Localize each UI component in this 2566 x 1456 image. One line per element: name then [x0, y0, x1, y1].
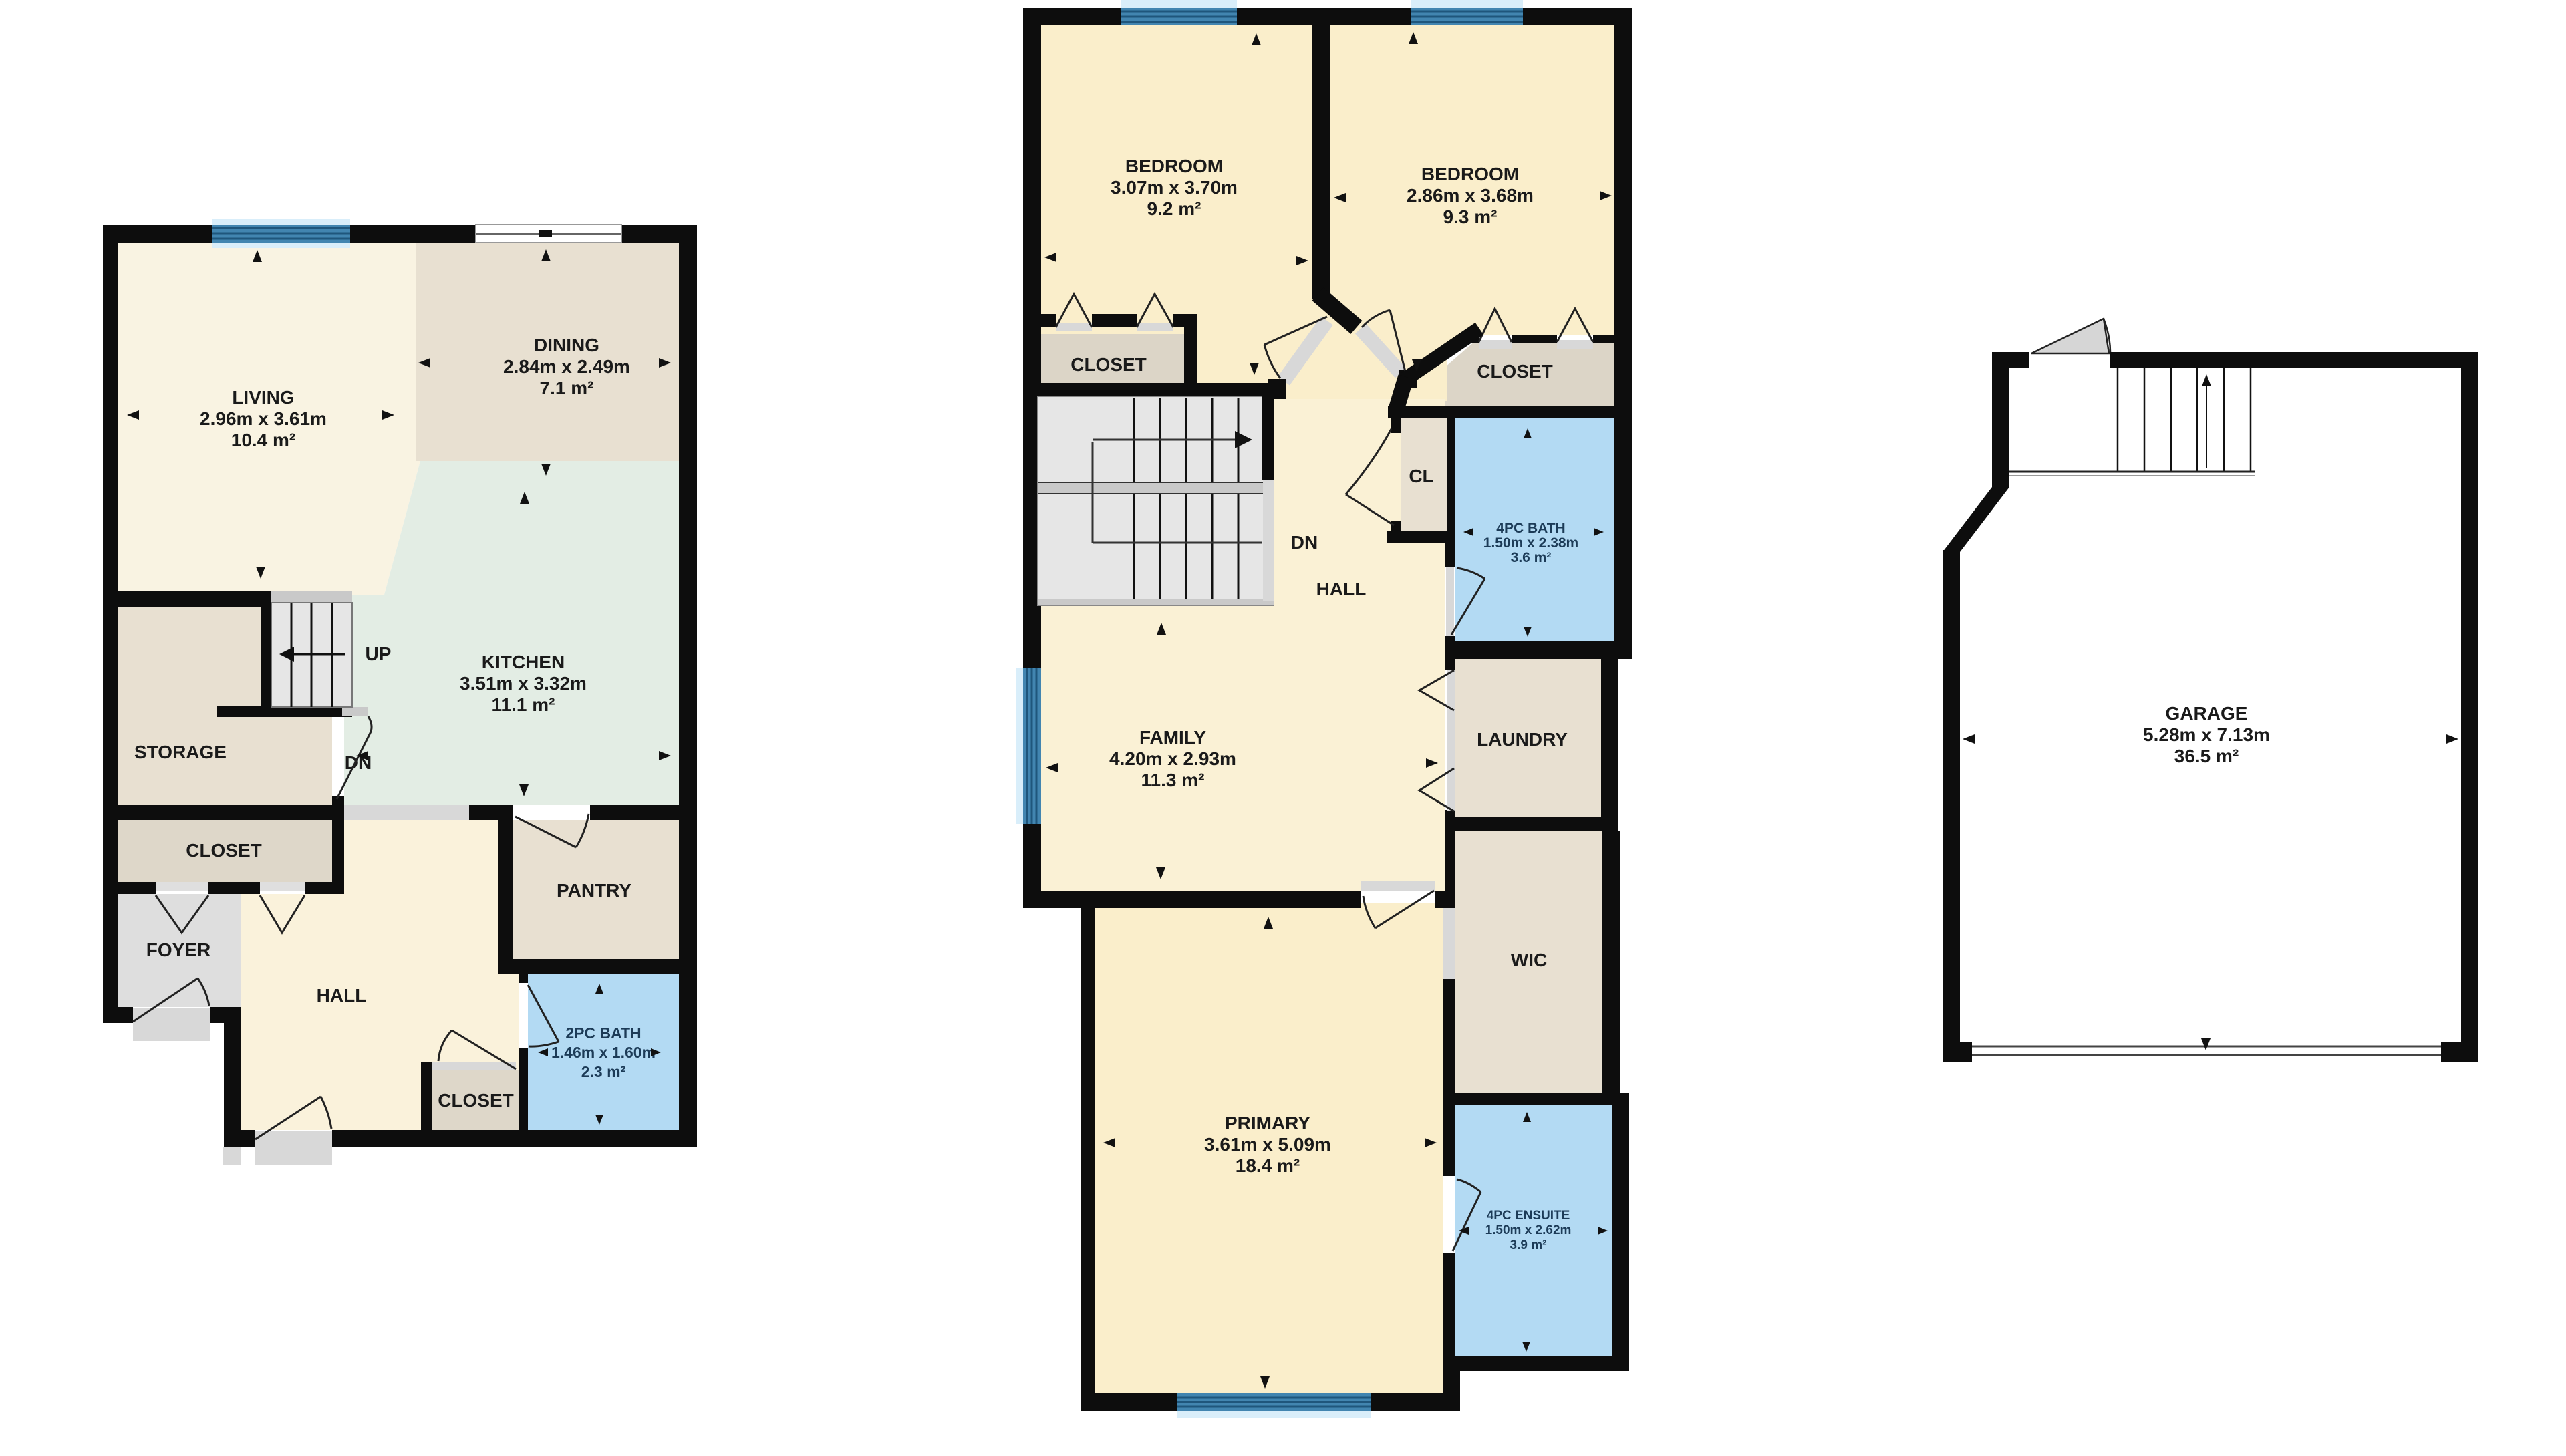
svg-text:1.46m x 1.60m: 1.46m x 1.60m [551, 1044, 656, 1061]
svg-text:BEDROOM: BEDROOM [1421, 164, 1519, 184]
svg-text:4PC ENSUITE: 4PC ENSUITE [1487, 1209, 1570, 1223]
svg-text:PANTRY: PANTRY [557, 880, 631, 901]
svg-text:LIVING: LIVING [232, 387, 294, 408]
svg-text:UP: UP [366, 643, 392, 664]
svg-text:FOYER: FOYER [146, 939, 210, 960]
svg-text:LAUNDRY: LAUNDRY [1477, 729, 1568, 750]
svg-text:3.6 m²: 3.6 m² [1511, 550, 1552, 565]
svg-text:11.3 m²: 11.3 m² [1141, 770, 1205, 790]
svg-text:CLOSET: CLOSET [1477, 361, 1553, 382]
svg-text:CL: CL [1409, 466, 1433, 486]
svg-text:DN: DN [1291, 532, 1318, 553]
svg-text:HALL: HALL [1316, 579, 1367, 599]
svg-text:9.3 m²: 9.3 m² [1443, 206, 1498, 227]
svg-text:CLOSET: CLOSET [186, 840, 262, 861]
svg-text:CLOSET: CLOSET [1071, 354, 1147, 375]
svg-text:1.50m x 2.62m: 1.50m x 2.62m [1485, 1223, 1572, 1237]
svg-text:9.2 m²: 9.2 m² [1147, 198, 1201, 219]
svg-text:KITCHEN: KITCHEN [482, 651, 565, 672]
svg-text:4PC BATH: 4PC BATH [1496, 521, 1565, 536]
svg-text:2.84m x 2.49m: 2.84m x 2.49m [503, 356, 630, 377]
svg-text:18.4 m²: 18.4 m² [1236, 1155, 1300, 1176]
svg-text:WIC: WIC [1511, 950, 1547, 970]
svg-text:2PC BATH: 2PC BATH [565, 1024, 641, 1042]
svg-text:3.07m x 3.70m: 3.07m x 3.70m [1111, 177, 1238, 198]
svg-text:11.1 m²: 11.1 m² [492, 694, 555, 715]
svg-text:3.61m x 5.09m: 3.61m x 5.09m [1204, 1134, 1331, 1155]
svg-text:7.1 m²: 7.1 m² [540, 378, 594, 398]
svg-text:1.50m x 2.38m: 1.50m x 2.38m [1483, 535, 1578, 551]
svg-text:2.3 m²: 2.3 m² [581, 1063, 626, 1080]
svg-text:DINING: DINING [534, 335, 599, 355]
svg-text:36.5 m²: 36.5 m² [2174, 746, 2239, 766]
svg-text:3.9 m²: 3.9 m² [1510, 1238, 1547, 1252]
svg-text:HALL: HALL [317, 985, 367, 1006]
svg-text:STORAGE: STORAGE [134, 742, 227, 762]
svg-text:10.4 m²: 10.4 m² [231, 430, 296, 450]
svg-text:4.20m x 2.93m: 4.20m x 2.93m [1109, 748, 1236, 769]
svg-text:FAMILY: FAMILY [1139, 727, 1206, 748]
svg-text:2.96m x 3.61m: 2.96m x 3.61m [200, 408, 327, 429]
svg-text:CLOSET: CLOSET [438, 1090, 514, 1111]
svg-text:GARAGE: GARAGE [2166, 703, 2248, 724]
svg-text:PRIMARY: PRIMARY [1225, 1113, 1310, 1133]
svg-text:5.28m x 7.13m: 5.28m x 7.13m [2143, 724, 2270, 745]
svg-text:BEDROOM: BEDROOM [1125, 156, 1223, 176]
svg-text:2.86m x 3.68m: 2.86m x 3.68m [1407, 185, 1534, 206]
svg-text:3.51m x 3.32m: 3.51m x 3.32m [460, 673, 587, 694]
